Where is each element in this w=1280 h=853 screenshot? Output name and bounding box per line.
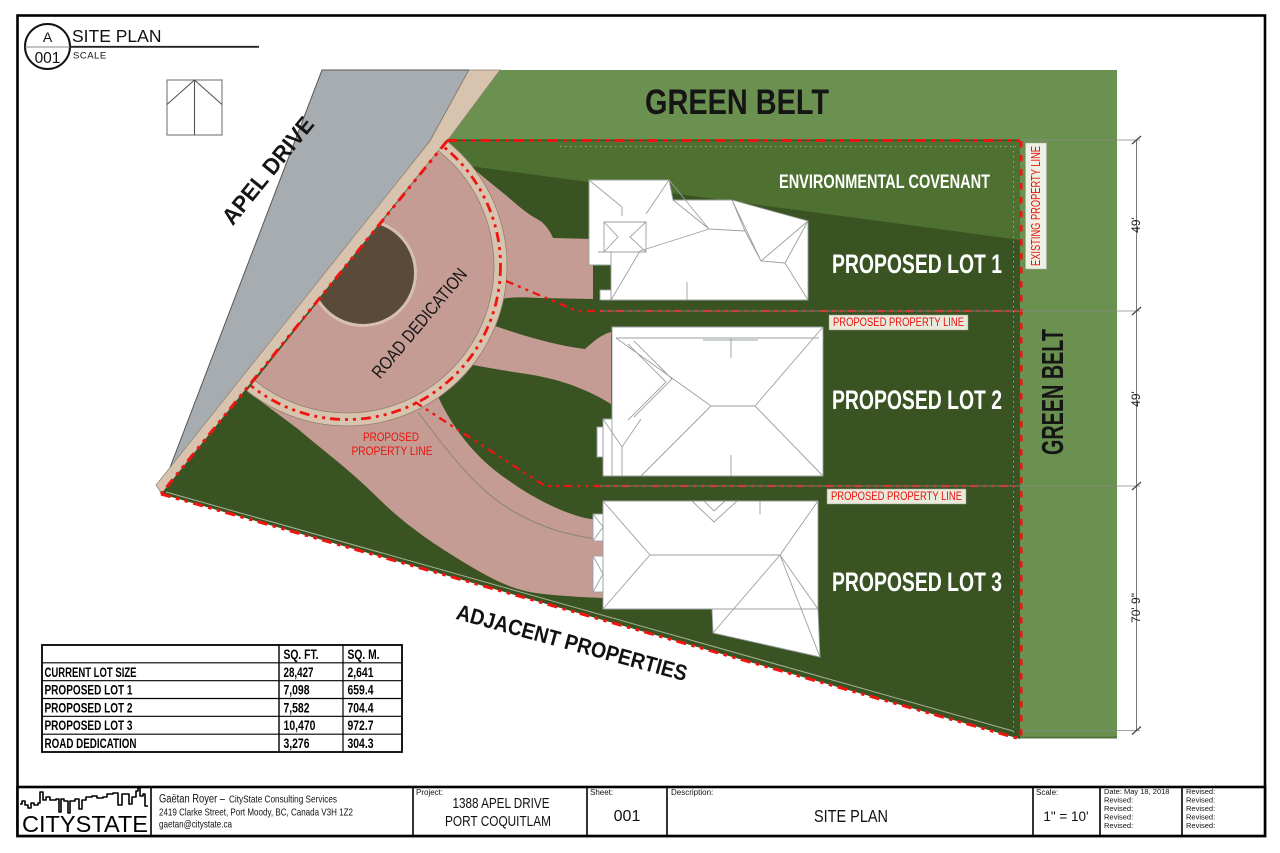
svg-text:Revised:: Revised: [1186, 821, 1215, 830]
svg-text:PROPOSED LOT 1: PROPOSED LOT 1 [45, 683, 133, 698]
svg-text:1" = 10': 1" = 10' [1043, 809, 1088, 824]
svg-text:972.7: 972.7 [348, 718, 374, 733]
svg-text:1388 APEL DRIVE: 1388 APEL DRIVE [453, 795, 550, 812]
svg-text:49': 49' [1129, 391, 1143, 407]
svg-text:ENVIRONMENTAL COVENANT: ENVIRONMENTAL COVENANT [779, 172, 990, 193]
svg-text:Revised:: Revised: [1104, 821, 1133, 830]
svg-text:gaetan@citystate.ca: gaetan@citystate.ca [159, 819, 232, 831]
svg-text:Sheet:: Sheet: [590, 788, 613, 797]
svg-text:704.4: 704.4 [348, 700, 374, 715]
svg-text:304.3: 304.3 [348, 736, 374, 751]
svg-text:PROPOSED LOT 3: PROPOSED LOT 3 [45, 718, 133, 733]
svg-text:CURRENT LOT SIZE: CURRENT LOT SIZE [45, 665, 137, 680]
svg-text:SCALE: SCALE [73, 51, 107, 62]
svg-text:Scale:: Scale: [1036, 788, 1058, 797]
svg-text:PROPOSED LOT 2: PROPOSED LOT 2 [45, 700, 133, 715]
svg-text:EXISTING PROPERTY LINE: EXISTING PROPERTY LINE [1029, 146, 1043, 266]
svg-text:SQ. FT.: SQ. FT. [284, 647, 319, 662]
svg-text:PROPOSED: PROPOSED [363, 430, 419, 444]
svg-text:Description:: Description: [671, 788, 713, 797]
svg-text:70' 9": 70' 9" [1129, 593, 1143, 623]
svg-text:PROPOSED LOT 1: PROPOSED LOT 1 [832, 249, 1002, 279]
svg-text:Project:: Project: [416, 788, 443, 797]
svg-text:28,427: 28,427 [284, 665, 314, 680]
svg-text:2419 Clarke Street, Port Moody: 2419 Clarke Street, Port Moody, BC, Cana… [159, 807, 353, 819]
svg-text:PROPERTY LINE: PROPERTY LINE [352, 444, 433, 458]
svg-text:001: 001 [35, 50, 61, 67]
svg-text:PROPOSED PROPERTY LINE: PROPOSED PROPERTY LINE [833, 317, 964, 329]
svg-text:10,470: 10,470 [284, 718, 316, 733]
svg-text:2,641: 2,641 [348, 665, 374, 680]
svg-text:CityState Consulting Services: CityState Consulting Services [229, 794, 337, 806]
svg-text:SQ. M.: SQ. M. [348, 647, 380, 662]
svg-text:3,276: 3,276 [284, 736, 310, 751]
svg-text:SITE PLAN: SITE PLAN [814, 806, 888, 826]
svg-text:PROPOSED LOT 3: PROPOSED LOT 3 [832, 567, 1002, 597]
svg-text:7,098: 7,098 [284, 683, 310, 698]
svg-text:7,582: 7,582 [284, 700, 310, 715]
svg-text:PROPOSED LOT 2: PROPOSED LOT 2 [832, 385, 1002, 415]
svg-text:CITYSTATE: CITYSTATE [22, 811, 148, 837]
svg-text:GREEN BELT: GREEN BELT [645, 83, 829, 122]
svg-text:GREEN BELT: GREEN BELT [1035, 329, 1070, 455]
svg-text:Gaëtan Royer –: Gaëtan Royer – [159, 794, 225, 806]
svg-text:49': 49' [1129, 217, 1143, 233]
svg-text:659.4: 659.4 [348, 683, 374, 698]
svg-text:SITE PLAN: SITE PLAN [72, 26, 161, 46]
svg-text:ROAD DEDICATION: ROAD DEDICATION [45, 736, 137, 751]
svg-text:001: 001 [614, 808, 641, 825]
svg-text:PROPOSED PROPERTY LINE: PROPOSED PROPERTY LINE [831, 491, 962, 503]
svg-text:PORT COQUITLAM: PORT COQUITLAM [445, 813, 551, 830]
svg-text:A: A [43, 29, 53, 45]
